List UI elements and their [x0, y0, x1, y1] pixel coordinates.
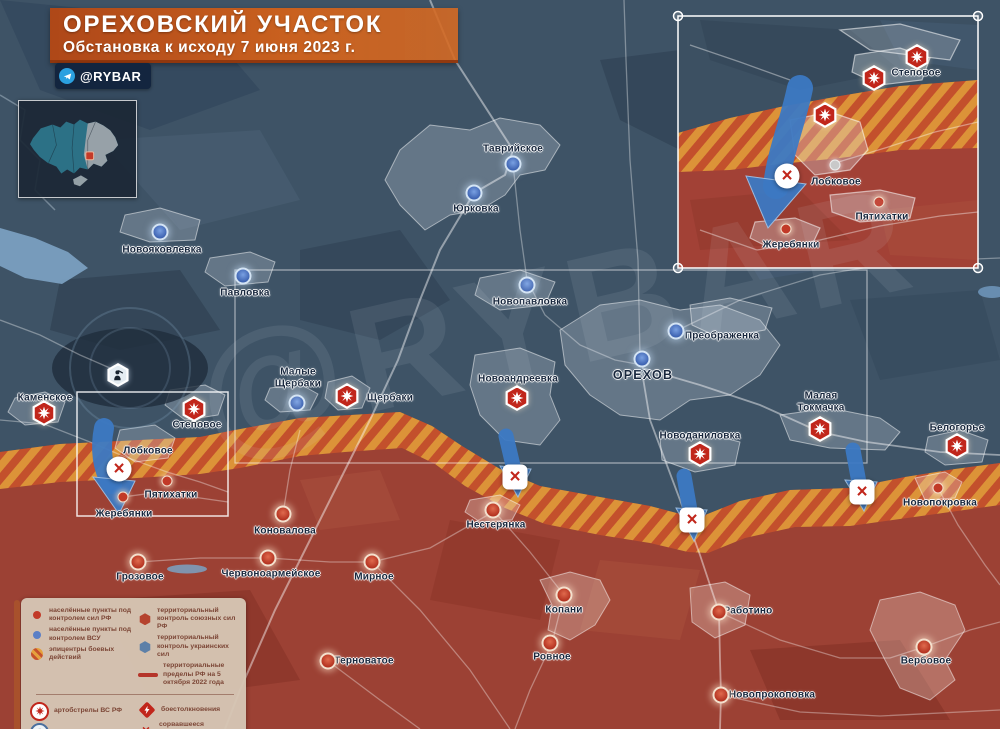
map-legend: населённые пункты под контролем сил РФна… [21, 598, 246, 729]
title-banner: ОРЕХОВСКИЙ УЧАСТОК Обстановка к исходу 7… [50, 8, 458, 63]
ru-dot-icon [33, 611, 41, 619]
legend-item: ×сорвавшееся наступление [138, 721, 240, 729]
clash-icon [139, 702, 156, 719]
situation-map: ТаврийскоеЮрковкаНовояковлевкаПавловкаНо… [0, 0, 1000, 729]
legend-item-label: боестолкновения [161, 706, 220, 714]
current-sector-marker [86, 152, 94, 160]
legend-item: территориальный контроль союзных сил РФ [138, 607, 240, 632]
red-line-icon [138, 673, 158, 677]
legend-item: населённые пункты под контролем сил РФ [30, 607, 132, 624]
afu-unit-icon [30, 723, 49, 729]
legend-column-strikes: артобстрелы ВС РФотряды ВСУ [30, 699, 132, 729]
channel-badge: @RYBAR [55, 63, 151, 89]
ru-hex-icon [139, 613, 151, 625]
legend-item: территориальный контроль украинских сил [138, 634, 240, 659]
failed-icon: × [138, 722, 154, 729]
legend-item-label: артобстрелы ВС РФ [54, 707, 122, 715]
legend-column-territory: территориальный контроль союзных сил РФт… [138, 604, 240, 690]
ukraine-outline [19, 101, 134, 195]
map-subtitle: Обстановка к исходу 7 июня 2023 г. [50, 37, 458, 57]
legend-item-label: эпицентры боевых действий [49, 646, 132, 663]
legend-item-label: территориальный контроль украинских сил [157, 634, 240, 659]
legend-item: отряды ВСУ [30, 723, 132, 729]
legend-divider [36, 694, 234, 695]
ua-dot-icon [33, 631, 41, 639]
stripe-circle-icon [31, 648, 43, 660]
map-title: ОРЕХОВСКИЙ УЧАСТОК [50, 8, 458, 37]
shelling-icon [30, 702, 49, 721]
legend-item-label: территориальные пределы РФ на 5 октября … [163, 662, 240, 687]
legend-item-label: населённые пункты под контролем сил РФ [49, 607, 132, 624]
legend-item: территориальные пределы РФ на 5 октября … [138, 662, 240, 687]
legend-item-label: населённые пункты под контролем ВСУ [49, 626, 132, 643]
ukraine-locator-minimap [18, 100, 137, 198]
legend-item-label: территориальный контроль союзных сил РФ [157, 607, 240, 632]
channel-handle: @RYBAR [80, 69, 141, 84]
telegram-icon [59, 68, 75, 84]
legend-column-settlements: населённые пункты под контролем сил РФна… [30, 604, 132, 690]
legend-item-label: сорвавшееся наступление [159, 721, 240, 729]
inset-zoom-map [678, 16, 978, 268]
legend-column-events: боестолкновения×сорвавшееся наступление [138, 699, 240, 729]
legend-item: эпицентры боевых действий [30, 646, 132, 663]
legend-item: населённые пункты под контролем ВСУ [30, 626, 132, 643]
legend-item: боестолкновения [138, 702, 240, 719]
ua-hex-icon [139, 641, 151, 653]
legend-item: артобстрелы ВС РФ [30, 702, 132, 721]
